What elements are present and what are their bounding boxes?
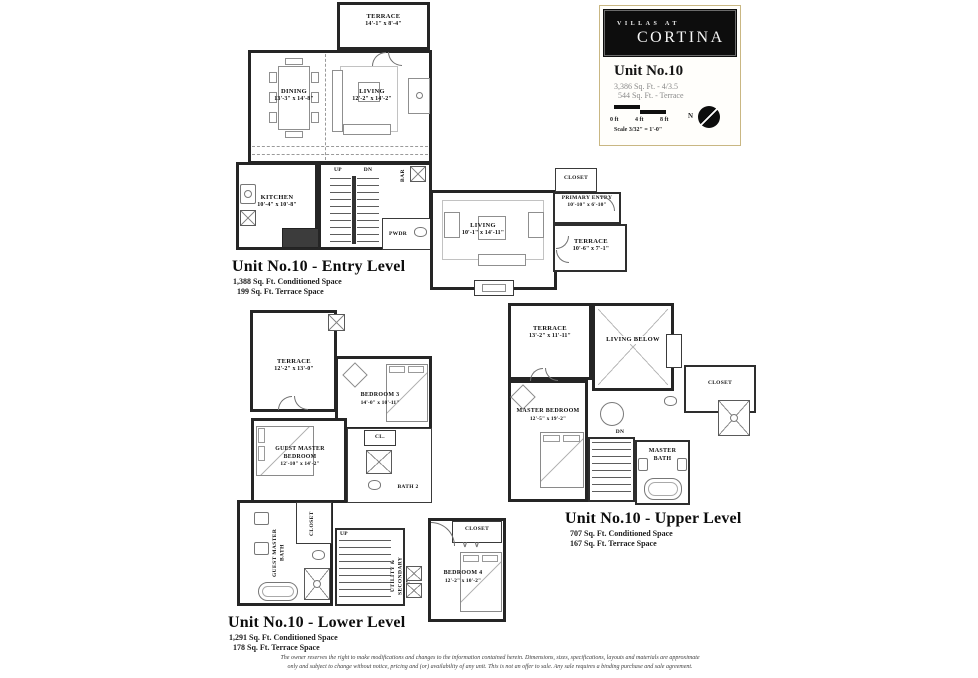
floorplan-sheet: VILLAS AT CORTINA Unit No.10 3,386 Sq. F… [0,0,978,678]
entry-terrace-space: 199 Sq. Ft. Terrace Space [233,287,324,296]
toilet-icon [312,550,325,560]
dining-chair [269,72,277,83]
utility-label: UTILITY & SECONDARY ENTRY [390,548,404,604]
dining-chair [285,58,303,65]
unit-title: Unit No.10 [614,63,683,80]
armchair [528,212,544,238]
stair-rail [352,176,356,244]
brand-logo: VILLAS AT CORTINA [603,9,737,57]
living-below-label: LIVING BELOW [606,336,660,344]
room-name: GUEST MASTER BEDROOM [262,446,338,461]
lower-plan-stats: 1,291 Sq. Ft. Conditioned Space 178 Sq. … [229,633,338,653]
stairs-flight-down [357,178,379,242]
entry-plan-stats: 1,388 Sq. Ft. Conditioned Space 199 Sq. … [233,277,342,297]
upper-plan-stats: 707 Sq. Ft. Conditioned Space 167 Sq. Ft… [570,529,673,549]
north-label: N [688,112,693,120]
unit-stats-line2: 544 Sq. Ft. - Terrace [614,91,684,100]
room-name: TERRACE [512,325,588,333]
bathtub-inner [262,586,294,597]
room-name: LIVING [344,88,400,96]
sink-icon [254,542,269,555]
room-name: LIVING [452,222,514,230]
lower-stairs [339,540,391,602]
utility-equipment-icon [406,583,422,598]
utility-equipment-icon [406,566,422,581]
unit-stats-line1: 3,386 Sq. Ft. - 4/3.5 [614,82,678,91]
brand-top-text: VILLAS AT [617,21,680,27]
unit-stats: 3,386 Sq. Ft. - 4/3.5 544 Sq. Ft. - Terr… [614,82,684,100]
room-name: BEDROOM 3 [348,392,412,400]
room-dims: 12'-5" x 19'-2" [512,416,584,423]
ceiling-line-1 [252,146,428,147]
bathtub-icon [258,582,298,601]
dining-chair [285,131,303,138]
cl-label: CL. [364,434,396,440]
scale-tick-8: 8 ft [660,117,669,123]
bedroom3-label: BEDROOM 3 14'-0" x 10'-11" [348,392,412,407]
bench [478,254,526,266]
pillow [463,555,479,562]
stairs-dn-label: DN [360,167,376,173]
dining-chair [311,72,319,83]
scale-tick-4: 4 ft [635,117,644,123]
upper-dn-label: DN [612,429,628,435]
lower-up-label: UP [336,531,352,537]
room-name: BEDROOM 4 [432,570,494,578]
upper-conditioned: 707 Sq. Ft. Conditioned Space [570,529,673,538]
fireplace-hearth-icon [482,284,506,292]
room-dims: 14'-0" x 10'-11" [348,400,412,407]
dining-living-divider [325,54,326,160]
bedroom4-closet-label: CLOSET [452,526,502,532]
brand-name-text: CORTINA [637,29,725,47]
pillow [482,555,498,562]
entry-plan-title: Unit No.10 - Entry Level [232,258,405,276]
upper-closet-label: CLOSET [690,380,750,386]
dining-chair [311,112,319,123]
room-dims: 13'-2" x 11'-11" [512,333,588,341]
room-name: LIVING BELOW [606,336,660,344]
living2-label: LIVING 10'-1" x 14'-11" [452,222,514,238]
upper-stairs [592,442,631,498]
fireplace-dot-icon [416,92,423,99]
scalebar-segment-2 [640,110,666,114]
powder-label: PWDR [385,231,411,237]
disclaimer-line2: only and subject to change without notic… [287,664,692,670]
lower-terrace-label: TERRACE 12'-2" x 13'-0" [254,358,334,374]
pillow [258,428,265,443]
pillow [543,435,560,442]
room-dims: 12'-10" x 14'-2" [262,461,338,468]
scale-tick-0: 0 ft [610,117,619,123]
bar-label: BAR [400,163,408,189]
pillow [408,366,424,373]
master-bedroom-label: MASTER BEDROOM 12'-5" x 19'-2" [512,408,584,423]
room-name: DINING [262,88,326,96]
lower-conditioned: 1,291 Sq. Ft. Conditioned Space [229,633,338,642]
room-name: MASTER BEDROOM [512,408,584,416]
sofa-sectional [332,70,343,132]
lower-terrace-space: 178 Sq. Ft. Terrace Space [229,643,320,652]
sink-icon [638,458,648,471]
bath2-label: BATH 2 [390,484,426,490]
sink-icon [677,458,687,471]
entry-conditioned: 1,388 Sq. Ft. Conditioned Space [233,277,342,286]
toilet-icon [414,227,427,237]
round-table-icon [600,402,624,426]
dining-chair [269,112,277,123]
stairs-up-label: UP [330,167,346,173]
open-to-below-x [598,309,668,385]
upper-terrace-label: TERRACE 13'-2" x 11'-11" [512,325,588,341]
planter-icon [328,314,345,331]
bifold-door-icon: ∨ ∨ [462,540,482,549]
scale-note: Scale 3/32" = 1'-0" [614,127,662,133]
disclaimer: The owner reserves the right to make mod… [185,654,795,671]
sink-basin-icon [244,190,252,198]
room-dims: 13'-3" x 14'-8" [262,96,326,104]
dining-label: DINING 13'-3" x 14'-8" [262,88,326,104]
room-dims: 10'-1" x 14'-11" [452,230,514,238]
guest-master-bath-label: GUEST MASTER BATH [272,520,286,586]
sofa-sectional [343,124,391,135]
bathtub-inner [648,482,678,496]
bathtub-icon [644,478,682,500]
shower-drain-icon [313,580,321,588]
room-name: TERRACE [337,13,430,21]
gm-closet-label: CLOSET [309,508,319,540]
shower-icon [366,450,392,474]
room-name: TERRACE [254,358,334,366]
title-block: VILLAS AT CORTINA Unit No.10 3,386 Sq. F… [599,5,741,146]
toilet-icon [664,396,677,406]
scalebar-segment-1 [614,105,640,109]
north-arrow-icon [698,106,720,128]
room-dims: 14'-1" x 8'-4" [337,21,430,29]
room-dims: 12'-2" x 14'-2" [344,96,400,104]
appliance-icon [240,210,256,226]
bedroom4-label: BEDROOM 4 12'-2" x 10'-2" [432,570,494,585]
pillow [563,435,580,442]
shower-drain-icon [730,414,738,422]
entry-closet-label: CLOSET [555,175,597,181]
disclaimer-line1: The owner reserves the right to make mod… [280,655,699,661]
room-dims: 12'-2" x 10'-2" [432,578,494,585]
sink-icon [254,512,269,525]
room-dims: 12'-2" x 13'-0" [254,366,334,374]
pillow [389,366,405,373]
living-label: LIVING 12'-2" x 14'-2" [344,88,400,104]
entry-terrace-label: TERRACE 14'-1" x 8'-4" [337,13,430,29]
bar-cabinet-icon [410,166,426,182]
guest-master-label: GUEST MASTER BEDROOM 12'-10" x 14'-2" [262,446,338,468]
lower-plan-title: Unit No.10 - Lower Level [228,614,405,632]
ceiling-line-2 [252,154,428,155]
chimney-icon [666,334,682,368]
stairs-flight-up [330,178,351,242]
upper-plan-title: Unit No.10 - Upper Level [565,510,742,528]
toilet-icon [368,480,381,490]
upper-terrace-space: 167 Sq. Ft. Terrace Space [570,539,657,548]
